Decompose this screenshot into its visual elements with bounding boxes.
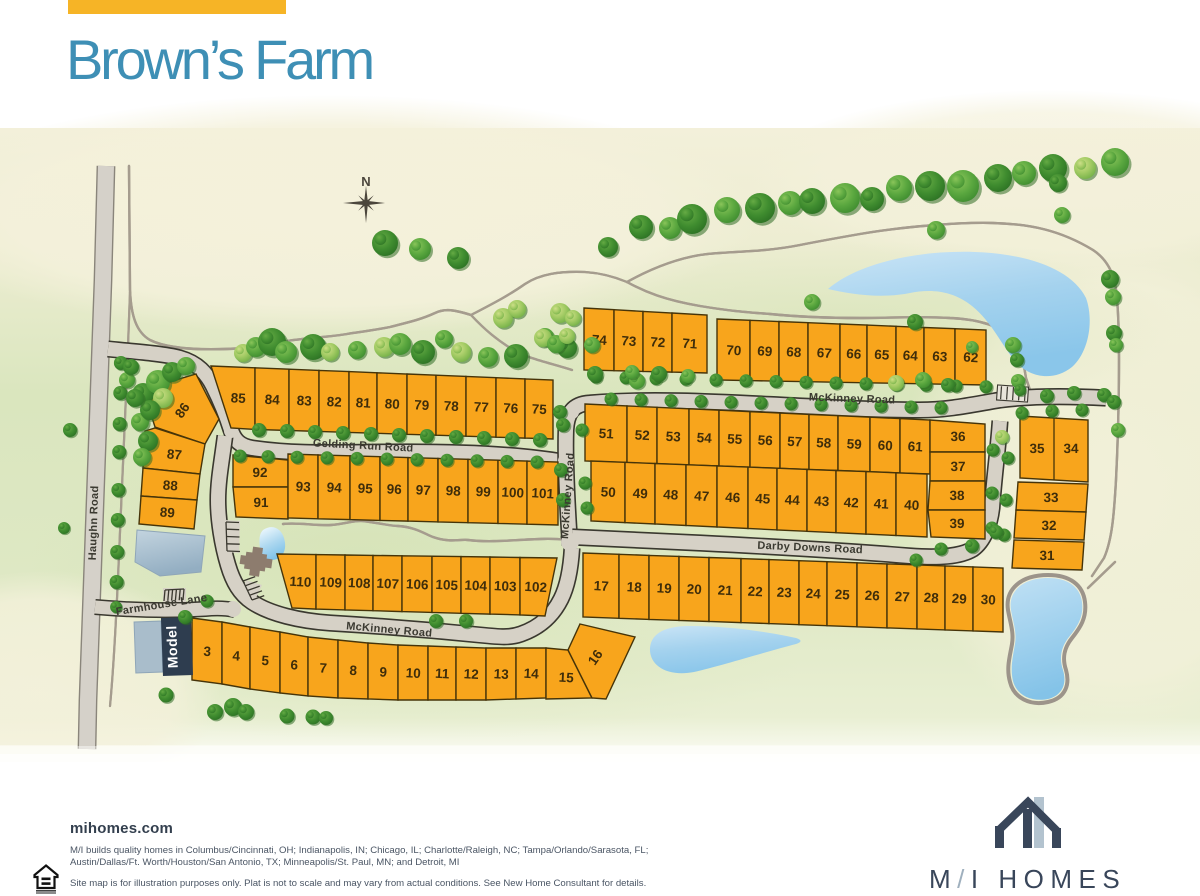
svg-text:45: 45 [755, 491, 771, 507]
svg-text:93: 93 [295, 479, 311, 495]
svg-text:59: 59 [846, 436, 862, 452]
svg-text:102: 102 [524, 579, 547, 595]
svg-text:27: 27 [894, 589, 910, 605]
svg-text:3: 3 [203, 644, 212, 659]
svg-text:77: 77 [473, 399, 489, 415]
svg-text:21: 21 [717, 583, 733, 599]
svg-text:88: 88 [162, 478, 179, 494]
svg-text:26: 26 [864, 588, 880, 604]
svg-text:29: 29 [951, 591, 967, 607]
svg-text:58: 58 [816, 435, 832, 451]
svg-text:49: 49 [632, 486, 648, 502]
svg-text:23: 23 [776, 585, 792, 601]
svg-text:12: 12 [463, 666, 479, 682]
svg-text:41: 41 [873, 496, 889, 512]
svg-text:60: 60 [877, 438, 893, 454]
svg-text:5: 5 [261, 653, 270, 668]
svg-text:95: 95 [357, 481, 373, 497]
svg-text:13: 13 [493, 666, 509, 682]
svg-text:4: 4 [232, 648, 241, 663]
svg-text:10: 10 [405, 665, 421, 681]
svg-text:17: 17 [593, 578, 609, 594]
svg-text:71: 71 [682, 336, 699, 352]
svg-text:39: 39 [949, 516, 964, 531]
svg-text:101: 101 [531, 485, 555, 501]
svg-text:50: 50 [600, 484, 616, 500]
svg-text:33: 33 [1043, 490, 1059, 505]
svg-text:47: 47 [694, 488, 710, 504]
svg-text:Model: Model [163, 625, 180, 668]
svg-text:9: 9 [379, 664, 387, 679]
svg-text:73: 73 [621, 333, 638, 349]
svg-text:109: 109 [319, 574, 342, 590]
svg-text:61: 61 [907, 439, 923, 455]
svg-text:84: 84 [264, 392, 280, 408]
svg-text:56: 56 [757, 433, 773, 449]
svg-text:32: 32 [1041, 518, 1056, 533]
svg-text:110: 110 [289, 574, 312, 590]
svg-text:38: 38 [949, 488, 965, 503]
svg-text:75: 75 [531, 401, 547, 417]
svg-text:96: 96 [386, 481, 402, 497]
svg-text:87: 87 [166, 446, 182, 462]
svg-text:100: 100 [501, 485, 524, 501]
svg-text:64: 64 [902, 348, 919, 364]
svg-text:79: 79 [414, 397, 430, 413]
svg-text:103: 103 [494, 578, 518, 594]
svg-text:42: 42 [843, 495, 859, 511]
svg-text:43: 43 [814, 493, 830, 509]
svg-text:83: 83 [296, 393, 312, 409]
svg-text:54: 54 [696, 430, 712, 446]
svg-text:25: 25 [834, 587, 850, 603]
svg-text:104: 104 [464, 578, 488, 594]
svg-text:80: 80 [384, 396, 400, 412]
svg-text:15: 15 [558, 670, 574, 686]
svg-text:99: 99 [475, 484, 491, 500]
svg-text:8: 8 [349, 663, 358, 678]
svg-text:108: 108 [348, 575, 372, 591]
svg-text:69: 69 [757, 343, 773, 359]
svg-text:30: 30 [980, 592, 996, 608]
svg-text:98: 98 [445, 483, 461, 499]
svg-text:7: 7 [319, 660, 327, 675]
svg-text:44: 44 [784, 492, 800, 508]
svg-text:76: 76 [503, 400, 519, 416]
svg-text:35: 35 [1029, 441, 1045, 456]
svg-text:66: 66 [846, 346, 863, 362]
svg-text:57: 57 [787, 434, 803, 450]
svg-text:92: 92 [252, 465, 267, 480]
svg-text:91: 91 [253, 495, 269, 510]
svg-text:85: 85 [230, 390, 246, 406]
svg-text:6: 6 [290, 657, 299, 672]
svg-text:51: 51 [598, 426, 614, 442]
svg-text:106: 106 [406, 576, 430, 592]
svg-text:68: 68 [786, 344, 803, 360]
svg-text:107: 107 [376, 576, 399, 592]
svg-text:82: 82 [326, 394, 342, 410]
svg-text:53: 53 [665, 429, 681, 445]
svg-text:28: 28 [923, 590, 939, 606]
svg-text:36: 36 [950, 429, 966, 444]
svg-text:72: 72 [650, 334, 666, 350]
svg-text:55: 55 [727, 431, 743, 447]
svg-text:48: 48 [663, 487, 679, 503]
svg-text:94: 94 [326, 480, 342, 496]
svg-text:40: 40 [904, 497, 920, 513]
svg-text:24: 24 [805, 586, 821, 602]
svg-text:52: 52 [634, 427, 650, 443]
svg-text:14: 14 [523, 666, 539, 682]
svg-text:46: 46 [725, 490, 741, 506]
svg-text:37: 37 [950, 459, 965, 474]
svg-text:11: 11 [435, 666, 451, 682]
svg-text:65: 65 [874, 347, 891, 363]
svg-text:78: 78 [443, 398, 459, 414]
svg-text:34: 34 [1063, 441, 1079, 456]
svg-text:89: 89 [159, 505, 175, 521]
svg-text:81: 81 [355, 395, 371, 411]
svg-text:70: 70 [726, 342, 742, 358]
svg-text:18: 18 [626, 579, 642, 595]
svg-text:31: 31 [1039, 548, 1055, 563]
svg-text:20: 20 [686, 581, 702, 597]
svg-text:105: 105 [435, 577, 459, 593]
svg-text:19: 19 [656, 580, 672, 596]
svg-text:67: 67 [816, 345, 832, 361]
svg-text:97: 97 [415, 482, 431, 498]
svg-text:22: 22 [747, 584, 763, 600]
svg-text:63: 63 [932, 349, 949, 365]
